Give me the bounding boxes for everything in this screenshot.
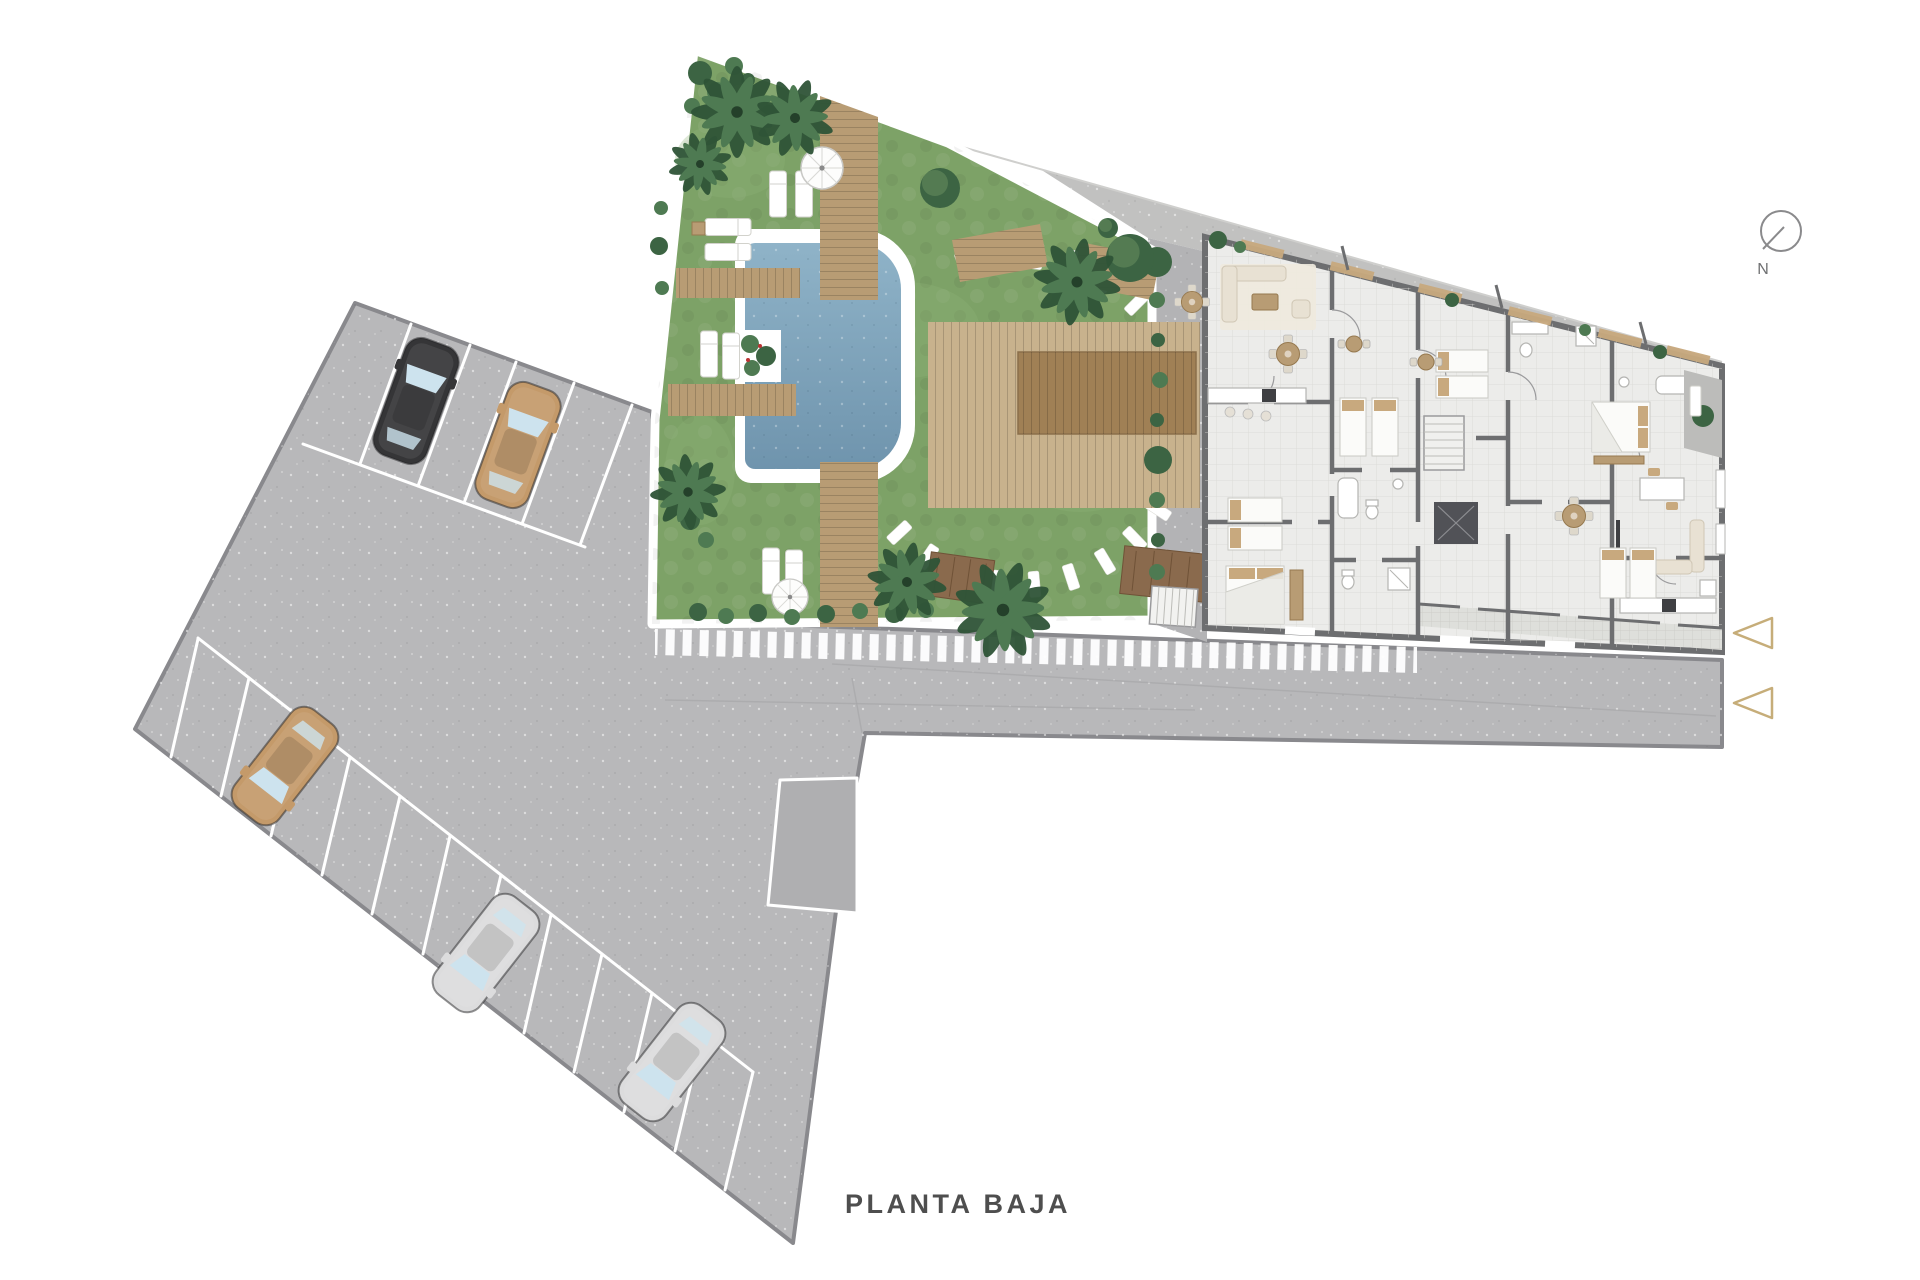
plan-title: PLANTA BAJA <box>845 1189 1071 1219</box>
exterior-stairs <box>1149 586 1198 627</box>
planter <box>735 330 781 382</box>
parasol <box>801 147 843 189</box>
bedroom-double <box>1226 566 1303 624</box>
entrance-arrows <box>1734 618 1772 718</box>
elevator <box>1434 502 1478 544</box>
floor-plan-page: N PLANTA BAJA <box>0 0 1920 1280</box>
parking-space-corner <box>768 778 857 913</box>
stairs <box>1424 416 1464 470</box>
entrance-arrow <box>1734 618 1772 648</box>
tree <box>1098 218 1118 238</box>
tree <box>920 168 960 208</box>
north-compass: N <box>1757 211 1801 278</box>
site-plan: N PLANTA BAJA <box>0 0 1920 1280</box>
balcony <box>1684 370 1722 458</box>
entrance-arrow <box>1734 688 1772 718</box>
living-room <box>1220 264 1316 330</box>
compass-north-label: N <box>1757 261 1769 278</box>
apartment-building <box>1205 237 1725 652</box>
